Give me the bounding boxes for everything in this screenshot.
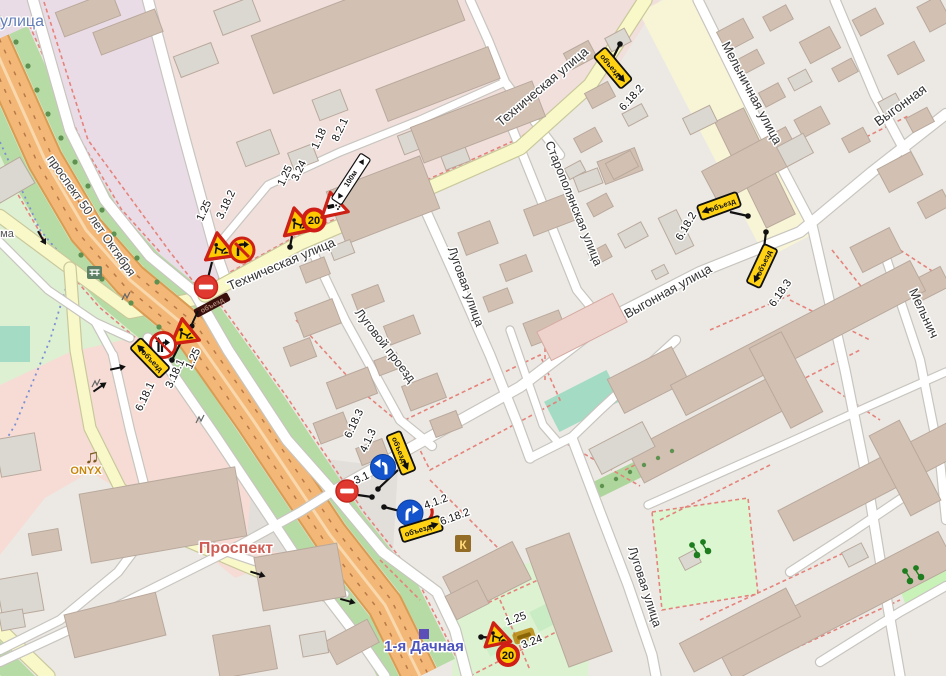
svg-text:улица: улица <box>0 13 44 30</box>
svg-text:ма: ма <box>0 228 15 240</box>
svg-text:ONYX: ONYX <box>70 465 102 477</box>
svg-text:20: 20 <box>308 215 320 227</box>
svg-text:20: 20 <box>502 650 514 662</box>
svg-text:Проспект: Проспект <box>199 540 273 557</box>
svg-text:1-я Дачная: 1-я Дачная <box>384 638 464 655</box>
svg-text:К: К <box>459 538 467 552</box>
